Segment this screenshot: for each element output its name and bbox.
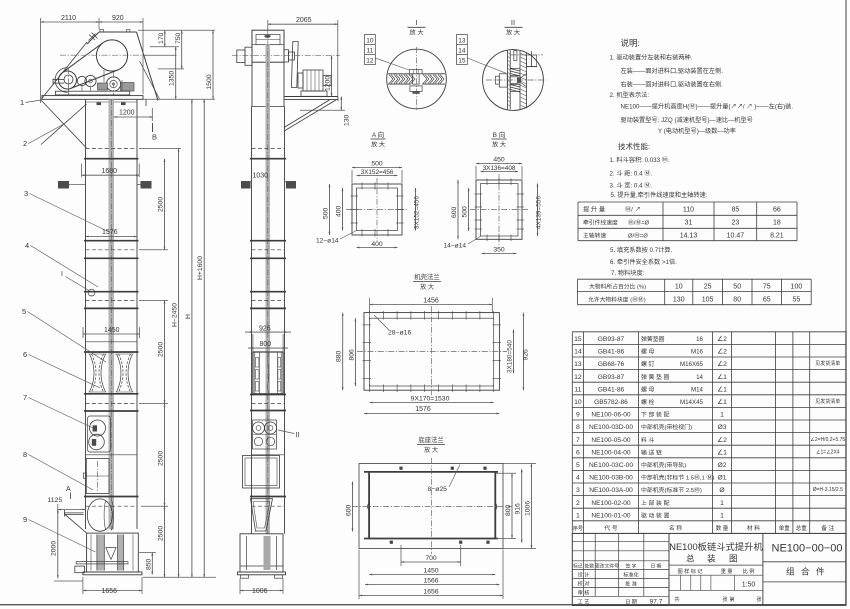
svg-text:12−ø14: 12−ø14 — [316, 238, 339, 245]
svg-text:9: 9 — [23, 515, 27, 524]
svg-text:M14: M14 — [691, 386, 704, 393]
svg-text:∠1=∠2X4: ∠1=∠2X4 — [816, 449, 840, 455]
svg-text:B 向: B 向 — [493, 130, 506, 139]
svg-text:1: 1 — [720, 500, 724, 507]
svg-text:1: 1 — [20, 98, 24, 107]
svg-text:材 料: 材 料 — [747, 524, 760, 532]
svg-text:放 大: 放 大 — [506, 29, 520, 37]
svg-text:GB93-87: GB93-87 — [598, 336, 625, 343]
svg-text:NE100-06-00: NE100-06-00 — [591, 412, 631, 419]
svg-text:GB41-86: GB41-86 — [598, 349, 625, 356]
svg-text:Ø/Ⓜ=Ø: Ø/Ⓜ=Ø — [628, 232, 648, 240]
svg-text:2: 2 — [576, 500, 580, 507]
svg-text:更改文件号: 更改文件号 — [595, 563, 619, 570]
svg-text:66: 66 — [773, 207, 781, 214]
svg-text:7. 物料块度:: 7. 物料块度: — [611, 269, 645, 277]
svg-text:500: 500 — [462, 206, 469, 218]
svg-text:工 艺: 工 艺 — [578, 598, 590, 605]
svg-text:校 对: 校 对 — [578, 580, 590, 588]
svg-text:3. 斗 宽: 0.4 Ⓜ.: 3. 斗 宽: 0.4 Ⓜ. — [610, 182, 653, 190]
svg-text:技术性能:: 技术性能: — [618, 141, 650, 151]
svg-text:见发货清单: 见发货清单 — [815, 360, 840, 367]
svg-text:驱 动 装 置: 驱 动 装 置 — [641, 511, 670, 519]
svg-text:M14X45: M14X45 — [680, 399, 704, 406]
svg-text:中部机壳(带导轨): 中部机壳(带导轨) — [641, 461, 686, 469]
svg-text:926: 926 — [523, 349, 530, 361]
svg-text:926: 926 — [259, 326, 271, 333]
svg-text:张: 张 — [756, 595, 762, 603]
svg-text:1456: 1456 — [423, 298, 439, 305]
svg-text:4: 4 — [576, 475, 580, 482]
svg-text:放 大: 放 大 — [420, 283, 434, 291]
svg-text:2110: 2110 — [61, 15, 76, 22]
svg-text:∠2: ∠2 — [717, 360, 727, 368]
svg-text:8: 8 — [576, 424, 580, 431]
svg-text:600: 600 — [346, 504, 353, 516]
svg-text:916: 916 — [515, 503, 522, 515]
svg-text:∠1: ∠1 — [717, 373, 727, 381]
svg-text:9X170=1530: 9X170=1530 — [411, 396, 450, 403]
svg-text:I: I — [61, 271, 63, 278]
svg-text:提 升 量: 提 升 量 — [583, 206, 605, 214]
svg-text:Ø1: Ø1 — [717, 475, 726, 482]
svg-text:NE100-05-00: NE100-05-00 — [591, 437, 631, 444]
svg-text:9: 9 — [576, 412, 580, 419]
svg-text:螺 栓: 螺 栓 — [641, 398, 655, 406]
svg-text:110: 110 — [683, 207, 694, 214]
svg-text:GB41-86: GB41-86 — [598, 386, 625, 393]
svg-text:Ⓜ/ ↗: Ⓜ/ ↗ — [625, 206, 641, 214]
svg-text:上 部 装 配: 上 部 装 配 — [641, 499, 670, 507]
svg-text:3: 3 — [24, 189, 28, 198]
svg-text:14−ø14: 14−ø14 — [444, 243, 467, 250]
svg-text:见发货清单: 见发货清单 — [815, 398, 840, 405]
svg-text:5. 填充系数按 0.7计算.: 5. 填充系数按 0.7计算. — [610, 246, 673, 254]
svg-text:右装——面对进料口,驱动装置在右侧.: 右装——面对进料口,驱动装置在右侧. — [621, 81, 724, 89]
svg-text:10: 10 — [574, 399, 582, 406]
svg-text:15: 15 — [458, 57, 466, 64]
svg-text:1500: 1500 — [206, 74, 213, 89]
svg-text:5: 5 — [576, 462, 580, 469]
svg-text:∠1: ∠1 — [717, 398, 727, 406]
svg-text:100: 100 — [791, 284, 803, 291]
svg-text:1. 料斗容积: 0.033 Ⓜ.: 1. 料斗容积: 0.033 Ⓜ. — [610, 156, 670, 164]
svg-text:NE100-03B-00: NE100-03B-00 — [589, 475, 633, 482]
svg-text:NE100——提升机高度H(Ⓜ)——提升量(↗↗/ ↗: NE100——提升机高度H(Ⓜ)——提升量(↗↗/ ↗ )——左(右)装. — [621, 103, 794, 111]
svg-text:组: 组 — [786, 566, 795, 577]
svg-text:50: 50 — [733, 284, 741, 291]
svg-text:12: 12 — [574, 374, 582, 381]
svg-text:13: 13 — [574, 361, 582, 368]
svg-text:总: 总 — [686, 553, 695, 564]
svg-text:25: 25 — [704, 284, 712, 291]
svg-text:总重: 总重 — [796, 524, 808, 532]
svg-text:11: 11 — [367, 47, 374, 54]
svg-text:Ⓜ/Ⓜ=Ø: Ⓜ/Ⓜ=Ø — [628, 219, 650, 227]
svg-text:Ø=H-3.15/2.5: Ø=H-3.15/2.5 — [813, 487, 843, 493]
svg-text:张: 张 — [722, 595, 728, 603]
svg-text:Ø: Ø — [719, 487, 725, 494]
svg-text:放 大: 放 大 — [371, 141, 385, 149]
svg-text:2. 斗 距: 0.4 Ⓜ.: 2. 斗 距: 0.4 Ⓜ. — [610, 170, 653, 178]
svg-text:B: B — [152, 133, 157, 142]
svg-text:7: 7 — [576, 437, 580, 444]
svg-text:大物料所占百分比 (%): 大物料所占百分比 (%) — [589, 283, 646, 291]
svg-text:2. 机型表示法:: 2. 机型表示法: — [610, 91, 650, 99]
svg-text:85: 85 — [732, 207, 740, 214]
svg-text:3X152=456: 3X152=456 — [414, 196, 421, 229]
svg-text:NE100-04-00: NE100-04-00 — [591, 449, 631, 456]
svg-text:Y (电动机型号)—级数—功率: Y (电动机型号)—级数—功率 — [658, 127, 736, 135]
svg-text:1200: 1200 — [119, 110, 135, 117]
svg-text:18: 18 — [773, 220, 781, 227]
svg-text:Ø3: Ø3 — [717, 424, 726, 431]
svg-text:放 大: 放 大 — [492, 141, 506, 149]
svg-text:2500: 2500 — [158, 526, 165, 541]
svg-text:弹 簧 垫 圈: 弹 簧 垫 圈 — [641, 373, 670, 381]
svg-text:料 斗: 料 斗 — [641, 436, 655, 444]
svg-text:14: 14 — [696, 374, 703, 381]
svg-text:750: 750 — [175, 32, 182, 44]
svg-text:NE100-02-00: NE100-02-00 — [591, 500, 631, 507]
svg-text:∠2: ∠2 — [717, 348, 727, 356]
svg-text:H+1600: H+1600 — [197, 256, 204, 280]
svg-text:NE100-01-00: NE100-01-00 — [591, 512, 631, 519]
svg-text:14: 14 — [574, 349, 582, 356]
svg-text:螺 母: 螺 母 — [641, 348, 655, 356]
svg-text:450: 450 — [493, 157, 505, 164]
svg-text:1200: 1200 — [325, 76, 332, 91]
svg-text:800: 800 — [260, 341, 272, 348]
svg-text:600: 600 — [451, 206, 458, 218]
svg-text:1576: 1576 — [415, 406, 431, 413]
svg-text:序号: 序号 — [573, 524, 583, 532]
svg-text:备 注: 备 注 — [821, 524, 834, 532]
svg-text:中部机壳(带检视门): 中部机壳(带检视门) — [641, 423, 692, 431]
svg-text:170: 170 — [158, 32, 165, 44]
svg-text:件: 件 — [816, 566, 825, 577]
svg-text:5: 5 — [22, 307, 26, 316]
svg-text:审 核: 审 核 — [578, 589, 590, 597]
svg-text:左装——面对进料口,驱动装置在左侧.: 左装——面对进料口,驱动装置在左侧. — [621, 67, 724, 75]
svg-text:920: 920 — [112, 15, 124, 22]
svg-text:M16X65: M16X65 — [680, 361, 704, 368]
svg-text:牵引件线速度: 牵引件线速度 — [583, 219, 618, 227]
svg-text:批 准: 批 准 — [625, 580, 637, 588]
svg-text:3: 3 — [576, 487, 580, 494]
svg-text:GB5782-86: GB5782-86 — [594, 399, 628, 406]
svg-text:806: 806 — [348, 349, 355, 361]
svg-text:6. 牵引件安全系数 >1倍.: 6. 牵引件安全系数 >1倍. — [610, 258, 677, 266]
svg-text:10: 10 — [366, 37, 374, 44]
svg-text:1350: 1350 — [169, 71, 176, 86]
svg-text:850: 850 — [145, 558, 152, 570]
svg-text:55: 55 — [793, 297, 801, 304]
svg-text:标准化: 标准化 — [623, 571, 639, 579]
svg-text:1030: 1030 — [253, 173, 269, 180]
svg-text:15: 15 — [574, 336, 582, 343]
svg-text:1006: 1006 — [524, 501, 531, 516]
svg-text:处数: 处数 — [584, 563, 594, 570]
svg-text:I: I — [415, 18, 417, 27]
svg-text:GB93-87: GB93-87 — [598, 374, 625, 381]
svg-text:螺 母: 螺 母 — [641, 385, 655, 393]
svg-text:1566: 1566 — [423, 578, 438, 585]
svg-text:II: II — [296, 432, 300, 439]
svg-text:1: 1 — [720, 412, 724, 419]
svg-text:13: 13 — [458, 37, 466, 44]
svg-text:∠2: ∠2 — [717, 335, 727, 343]
svg-text:1450: 1450 — [104, 327, 120, 334]
svg-text:16: 16 — [696, 336, 703, 343]
svg-text:500: 500 — [323, 207, 330, 219]
svg-text:签 字: 签 字 — [626, 563, 637, 570]
svg-text:7: 7 — [23, 393, 27, 402]
svg-text:比 例: 比 例 — [743, 567, 755, 575]
svg-text:500: 500 — [371, 161, 383, 168]
svg-text:14.13: 14.13 — [680, 233, 698, 240]
svg-text:H−2450: H−2450 — [172, 303, 179, 327]
svg-text:80: 80 — [733, 297, 741, 304]
svg-text:说明:: 说明: — [621, 38, 640, 48]
svg-text:∠2=H/0.2+5.75: ∠2=H/0.2+5.75 — [810, 437, 845, 443]
svg-text:放 大: 放 大 — [409, 29, 423, 37]
svg-text:Ø2: Ø2 — [717, 462, 726, 469]
svg-text:图: 图 — [729, 554, 738, 564]
svg-text:400: 400 — [336, 205, 343, 217]
svg-text:1:50: 1:50 — [742, 582, 756, 589]
svg-text:2500: 2500 — [158, 451, 165, 466]
svg-text:8−ø25: 8−ø25 — [428, 486, 448, 493]
svg-text:数 量: 数 量 — [716, 524, 729, 532]
svg-text:名 称: 名 称 — [669, 524, 682, 532]
svg-text:12: 12 — [366, 57, 374, 64]
svg-text:图 样 标 记: 图 样 标 记 — [677, 567, 702, 575]
svg-text:8: 8 — [23, 450, 27, 459]
svg-text:1006: 1006 — [252, 588, 268, 595]
svg-text:2065: 2065 — [296, 17, 312, 24]
svg-text:第: 第 — [729, 595, 734, 603]
svg-text:1680: 1680 — [102, 168, 118, 175]
svg-text:日 期: 日 期 — [625, 598, 637, 605]
svg-text:A: A — [66, 486, 71, 493]
svg-text:1125: 1125 — [48, 497, 63, 504]
svg-text:4: 4 — [25, 241, 29, 250]
svg-text:M16: M16 — [691, 349, 704, 356]
svg-text:∠1: ∠1 — [717, 385, 727, 393]
svg-text:5. 提升量,牵引件线速度和主轴转速:: 5. 提升量,牵引件线速度和主轴转速: — [611, 191, 708, 199]
svg-text:400: 400 — [371, 241, 383, 248]
svg-text:日 期: 日 期 — [651, 564, 662, 570]
svg-text:NE100−00−00: NE100−00−00 — [772, 543, 843, 555]
svg-text:28−ø16: 28−ø16 — [388, 330, 411, 337]
svg-text:A 向: A 向 — [372, 130, 384, 139]
svg-text:∠2: ∠2 — [717, 436, 727, 444]
svg-text:65: 65 — [763, 297, 771, 304]
svg-text:1: 1 — [720, 512, 724, 519]
svg-text:重 量: 重 量 — [721, 567, 733, 575]
svg-text:驱动装置型号; JZQ (减速机型号)—速比—机型号: 驱动装置型号; JZQ (减速机型号)—速比—机型号 — [621, 116, 753, 124]
svg-text:10: 10 — [675, 284, 683, 291]
svg-text:1: 1 — [576, 512, 580, 519]
svg-text:3X136=408: 3X136=408 — [483, 165, 516, 172]
svg-text:10.47: 10.47 — [727, 233, 745, 240]
svg-text:11: 11 — [574, 386, 581, 393]
svg-text:NE100-03C-00: NE100-03C-00 — [589, 462, 633, 469]
svg-text:1656: 1656 — [102, 588, 118, 595]
svg-text:弹簧垫圈: 弹簧垫圈 — [641, 335, 665, 343]
svg-text:130: 130 — [673, 297, 685, 304]
svg-text:6: 6 — [576, 449, 580, 456]
svg-text:97.7: 97.7 — [650, 598, 663, 605]
svg-text:螺 钉: 螺 钉 — [641, 360, 655, 368]
svg-text:标记: 标记 — [573, 563, 583, 570]
svg-text:1. 驱动装置分左装和右装两种.: 1. 驱动装置分左装和右装两种. — [610, 54, 693, 62]
svg-text:105: 105 — [702, 297, 714, 304]
svg-text:800: 800 — [505, 504, 512, 516]
svg-text:2500: 2500 — [158, 342, 165, 357]
svg-text:输 送 链: 输 送 链 — [641, 448, 662, 456]
svg-text:700: 700 — [425, 555, 437, 562]
svg-text:放 大: 放 大 — [424, 446, 438, 454]
svg-text:II: II — [511, 18, 515, 27]
svg-text:中部机壳(标准节 2.5Ⓜ): 中部机壳(标准节 2.5Ⓜ) — [641, 486, 702, 494]
svg-text:2000: 2000 — [51, 541, 58, 556]
svg-text:2500: 2500 — [158, 197, 165, 212]
svg-text:75: 75 — [763, 284, 771, 291]
svg-text:350: 350 — [493, 247, 505, 254]
svg-text:底座法兰: 底座法兰 — [418, 435, 444, 444]
svg-text:NE100-03A-00: NE100-03A-00 — [589, 487, 633, 494]
svg-text:允许大物料块度 (ⓂⓂ): 允许大物料块度 (ⓂⓂ) — [588, 296, 646, 304]
svg-text:23: 23 — [732, 220, 740, 227]
svg-text:4X139=556: 4X139=556 — [536, 196, 543, 229]
svg-text:下 部 装 配: 下 部 装 配 — [641, 411, 670, 419]
svg-text:设 计: 设 计 — [578, 571, 590, 579]
svg-text:H: H — [185, 314, 192, 319]
svg-text:NE100-03D-00: NE100-03D-00 — [589, 424, 633, 431]
svg-text:NE100板链斗式提升机: NE100板链斗式提升机 — [669, 541, 763, 552]
svg-text:代 号: 代 号 — [604, 524, 617, 532]
svg-text:中部机壳(非标节 1.5Ⓜ,1 Ⓜ): 中部机壳(非标节 1.5Ⓜ,1 Ⓜ) — [641, 474, 714, 482]
svg-text:8.21: 8.21 — [770, 233, 784, 240]
svg-text:主轴转速: 主轴转速 — [583, 232, 606, 240]
svg-text:1656: 1656 — [423, 589, 438, 596]
svg-text:1450: 1450 — [423, 568, 438, 575]
svg-text:3X180=540: 3X180=540 — [507, 340, 514, 373]
svg-text:880: 880 — [336, 350, 343, 362]
svg-text:GB68-76: GB68-76 — [598, 361, 625, 368]
svg-text:单重: 单重 — [779, 524, 791, 532]
svg-text:3X152=456: 3X152=456 — [361, 169, 394, 176]
svg-text:2: 2 — [23, 139, 27, 148]
svg-text:合: 合 — [801, 566, 810, 577]
svg-text:6: 6 — [23, 350, 27, 359]
svg-text:130: 130 — [344, 114, 351, 126]
svg-text:∠1: ∠1 — [717, 448, 727, 456]
svg-text:装: 装 — [707, 553, 716, 564]
svg-text:共: 共 — [674, 595, 679, 603]
svg-text:机壳法兰: 机壳法兰 — [414, 272, 440, 281]
svg-text:14: 14 — [458, 47, 466, 54]
svg-text:31: 31 — [685, 220, 693, 227]
